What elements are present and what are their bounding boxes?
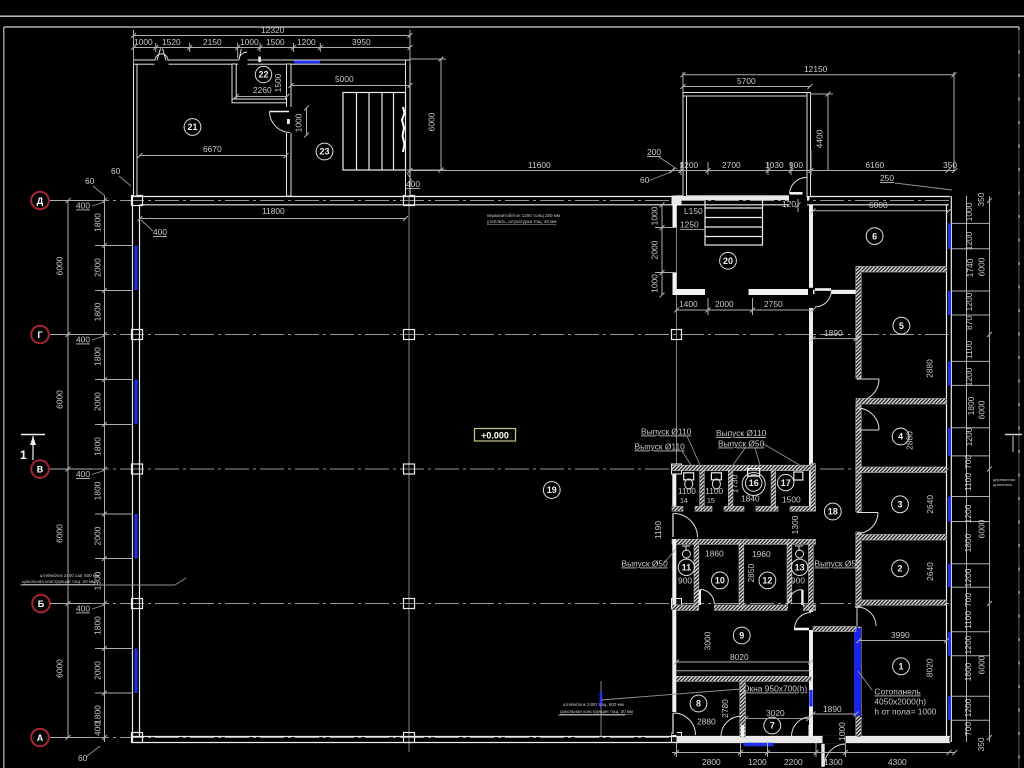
svg-text:Д: Д <box>37 196 44 206</box>
svg-text:6000: 6000 <box>977 519 987 538</box>
svg-text:60: 60 <box>111 166 121 176</box>
svg-text:400: 400 <box>76 335 90 345</box>
svg-text:2700: 2700 <box>722 160 741 170</box>
svg-text:2000: 2000 <box>93 392 103 411</box>
svg-text:400: 400 <box>76 604 90 614</box>
svg-text:7: 7 <box>770 721 775 731</box>
svg-text:16: 16 <box>749 478 759 488</box>
svg-text:10: 10 <box>715 576 725 586</box>
svg-text:1200: 1200 <box>964 231 974 250</box>
svg-text:13: 13 <box>795 563 805 573</box>
svg-text:2000: 2000 <box>650 240 660 259</box>
svg-text:L150: L150 <box>684 206 703 216</box>
svg-text:В: В <box>37 465 44 475</box>
svg-text:6670: 6670 <box>203 144 222 154</box>
svg-text:1200: 1200 <box>963 568 973 587</box>
svg-text:400: 400 <box>76 469 90 479</box>
svg-text:3: 3 <box>897 500 902 510</box>
svg-text:цокольная конструкция тощ. 20: цокольная конструкция тощ. 20 мм <box>22 579 95 584</box>
svg-text:400: 400 <box>153 227 167 237</box>
svg-text:6000: 6000 <box>977 400 987 419</box>
svg-text:1860: 1860 <box>705 549 724 559</box>
svg-text:4: 4 <box>898 432 903 442</box>
svg-text:2850: 2850 <box>746 564 756 583</box>
svg-text:Б: Б <box>38 599 45 609</box>
svg-text:1960: 1960 <box>752 549 771 559</box>
svg-text:3020: 3020 <box>766 708 785 718</box>
svg-text:17: 17 <box>781 478 791 488</box>
svg-text:6000: 6000 <box>55 659 65 678</box>
svg-text:1800: 1800 <box>93 302 103 321</box>
svg-text:2260: 2260 <box>253 85 272 95</box>
svg-text:2880: 2880 <box>905 431 915 450</box>
svg-text:керамзитобетон 1200 толщ 250 м: керамзитобетон 1200 толщ 250 мм <box>487 213 560 218</box>
svg-text:11800: 11800 <box>262 206 285 216</box>
svg-text:цокольная конструкция тощ. 20: цокольная конструкция тощ. 20 мм <box>560 709 633 714</box>
svg-text:8020: 8020 <box>730 652 749 662</box>
svg-text:Выпуск Ø110: Выпуск Ø110 <box>635 442 686 452</box>
svg-text:350: 350 <box>976 192 986 206</box>
svg-text:1030: 1030 <box>765 160 784 170</box>
svg-text:+0.000: +0.000 <box>481 430 509 440</box>
svg-text:6000: 6000 <box>869 200 888 210</box>
svg-text:700: 700 <box>963 455 973 469</box>
svg-text:1000: 1000 <box>837 722 847 741</box>
svg-text:1200: 1200 <box>297 37 316 47</box>
svg-text:900: 900 <box>791 576 805 586</box>
svg-text:15: 15 <box>707 498 715 505</box>
svg-text:1800: 1800 <box>93 437 103 456</box>
svg-text:120: 120 <box>782 199 796 209</box>
svg-text:22: 22 <box>258 70 268 80</box>
svg-text:1840: 1840 <box>741 494 760 504</box>
svg-text:1000: 1000 <box>240 37 259 47</box>
svg-text:5700: 5700 <box>737 76 756 86</box>
svg-text:1100: 1100 <box>963 473 973 491</box>
svg-text:6000: 6000 <box>977 257 987 276</box>
svg-text:1100: 1100 <box>705 486 723 496</box>
svg-text:20: 20 <box>723 256 733 266</box>
svg-text:1800: 1800 <box>963 533 973 552</box>
svg-text:1000: 1000 <box>650 274 660 293</box>
svg-text:1800: 1800 <box>93 347 103 366</box>
svg-text:2880: 2880 <box>924 359 934 378</box>
svg-text:870: 870 <box>964 316 974 330</box>
svg-text:1890: 1890 <box>824 328 843 338</box>
svg-text:200: 200 <box>647 147 661 157</box>
svg-text:400: 400 <box>76 201 90 211</box>
svg-text:А: А <box>37 733 44 743</box>
svg-text:1100: 1100 <box>963 611 973 629</box>
svg-text:12: 12 <box>762 576 772 586</box>
svg-text:3000: 3000 <box>703 631 713 650</box>
svg-text:1000: 1000 <box>650 206 660 225</box>
svg-text:1730: 1730 <box>730 474 740 493</box>
svg-text:19: 19 <box>547 485 557 495</box>
svg-text:1500: 1500 <box>273 73 283 92</box>
svg-text:Выпуск Ø50: Выпуск Ø50 <box>815 559 862 569</box>
svg-text:1000: 1000 <box>294 113 304 132</box>
svg-text:2000: 2000 <box>93 661 103 680</box>
svg-text:6000: 6000 <box>55 256 65 275</box>
svg-text:60: 60 <box>640 175 650 185</box>
svg-text:60: 60 <box>78 753 88 763</box>
svg-text:8: 8 <box>696 699 701 709</box>
svg-text:350: 350 <box>943 160 957 170</box>
svg-text:6: 6 <box>872 231 877 241</box>
svg-text:5: 5 <box>899 321 904 331</box>
svg-text:60: 60 <box>85 176 95 186</box>
svg-text:2000: 2000 <box>93 526 103 545</box>
svg-text:штейнблок 2400 тощ. 600 мм: штейнблок 2400 тощ. 600 мм <box>563 701 624 707</box>
svg-text:400: 400 <box>406 179 420 189</box>
svg-text:1740: 1740 <box>965 258 975 277</box>
svg-text:6000: 6000 <box>55 390 65 409</box>
svg-text:Окна 950х700(h): Окна 950х700(h) <box>743 684 807 694</box>
svg-text:11: 11 <box>682 563 692 573</box>
svg-text:1800: 1800 <box>93 705 103 724</box>
svg-text:Сотопанель: Сотопанель <box>874 687 921 697</box>
svg-text:1200: 1200 <box>748 757 767 767</box>
svg-text:2150: 2150 <box>203 37 222 47</box>
svg-text:250: 250 <box>880 173 894 183</box>
svg-text:1800: 1800 <box>966 396 976 415</box>
svg-text:Выпуск Ø110: Выпуск Ø110 <box>641 427 692 437</box>
svg-text:утеплить, штукатурка тощ. 20 м: утеплить, штукатурка тощ. 20 мм <box>487 219 556 224</box>
svg-text:14: 14 <box>680 498 688 505</box>
svg-text:1500: 1500 <box>266 37 285 47</box>
svg-text:Г: Г <box>37 330 42 340</box>
svg-text:2: 2 <box>897 564 902 574</box>
svg-text:2200: 2200 <box>784 757 803 767</box>
svg-text:900: 900 <box>678 576 692 586</box>
svg-text:h от пола= 1000: h от пола= 1000 <box>874 706 936 716</box>
svg-text:2640: 2640 <box>925 562 935 581</box>
svg-text:2780: 2780 <box>720 699 730 718</box>
svg-text:6000: 6000 <box>977 655 987 674</box>
svg-text:1200: 1200 <box>964 292 974 311</box>
svg-text:6160: 6160 <box>866 160 885 170</box>
svg-text:1300: 1300 <box>824 757 843 767</box>
svg-text:4400: 4400 <box>815 129 825 148</box>
svg-text:21: 21 <box>187 122 197 132</box>
svg-text:4300: 4300 <box>888 757 907 767</box>
svg-text:Выпуск Ø50: Выпуск Ø50 <box>622 559 669 569</box>
svg-text:1300: 1300 <box>790 515 800 534</box>
svg-text:1000: 1000 <box>134 37 153 47</box>
svg-text:2800: 2800 <box>702 757 721 767</box>
svg-text:900: 900 <box>789 160 803 170</box>
svg-text:700: 700 <box>963 722 973 736</box>
svg-text:2640: 2640 <box>925 495 935 514</box>
svg-text:11600: 11600 <box>528 160 551 170</box>
svg-text:диагональ: диагональ <box>993 482 1012 487</box>
svg-text:3950: 3950 <box>352 37 371 47</box>
svg-text:1890: 1890 <box>823 704 842 714</box>
svg-text:1800: 1800 <box>93 213 103 232</box>
svg-text:1100: 1100 <box>678 486 696 496</box>
svg-text:1200: 1200 <box>964 367 974 386</box>
svg-text:9: 9 <box>739 631 744 641</box>
svg-text:8020: 8020 <box>924 658 934 677</box>
svg-text:1: 1 <box>898 662 903 672</box>
svg-text:1800: 1800 <box>93 616 103 635</box>
svg-text:1: 1 <box>20 448 27 462</box>
svg-text:1200: 1200 <box>680 160 699 170</box>
svg-text:1800: 1800 <box>93 481 103 500</box>
svg-text:1000: 1000 <box>964 202 974 221</box>
svg-text:6000: 6000 <box>427 112 437 131</box>
svg-text:1250: 1250 <box>680 220 699 230</box>
svg-text:4050х2000(h): 4050х2000(h) <box>874 696 926 706</box>
svg-text:1500: 1500 <box>782 495 801 505</box>
svg-text:штейнблок 2400 шаг 600 мм: штейнблок 2400 шаг 600 мм <box>40 572 99 578</box>
svg-text:1520: 1520 <box>162 37 181 47</box>
svg-text:2000: 2000 <box>715 299 734 309</box>
svg-text:400: 400 <box>93 722 103 736</box>
svg-text:1200: 1200 <box>963 698 973 717</box>
svg-text:1200: 1200 <box>963 635 973 654</box>
svg-text:23: 23 <box>319 147 329 157</box>
svg-text:1200: 1200 <box>963 504 973 523</box>
svg-text:1800: 1800 <box>963 662 973 681</box>
svg-text:12320: 12320 <box>261 25 285 35</box>
svg-text:18: 18 <box>828 507 838 517</box>
svg-text:1400: 1400 <box>679 299 698 309</box>
svg-text:1200: 1200 <box>964 427 974 446</box>
svg-text:Выпуск Ø50: Выпуск Ø50 <box>718 439 765 449</box>
svg-text:5000: 5000 <box>335 74 354 84</box>
svg-text:700: 700 <box>963 593 973 607</box>
svg-text:6000: 6000 <box>55 524 65 543</box>
svg-text:1100: 1100 <box>964 341 974 359</box>
svg-text:3990: 3990 <box>891 630 910 640</box>
svg-text:1190: 1190 <box>653 521 663 539</box>
svg-text:2750: 2750 <box>764 299 783 309</box>
svg-text:12150: 12150 <box>804 64 828 74</box>
svg-text:2000: 2000 <box>93 258 103 277</box>
svg-text:2880: 2880 <box>697 717 716 727</box>
svg-text:Выпуск Ø110: Выпуск Ø110 <box>716 428 767 438</box>
svg-text:350: 350 <box>976 737 986 751</box>
